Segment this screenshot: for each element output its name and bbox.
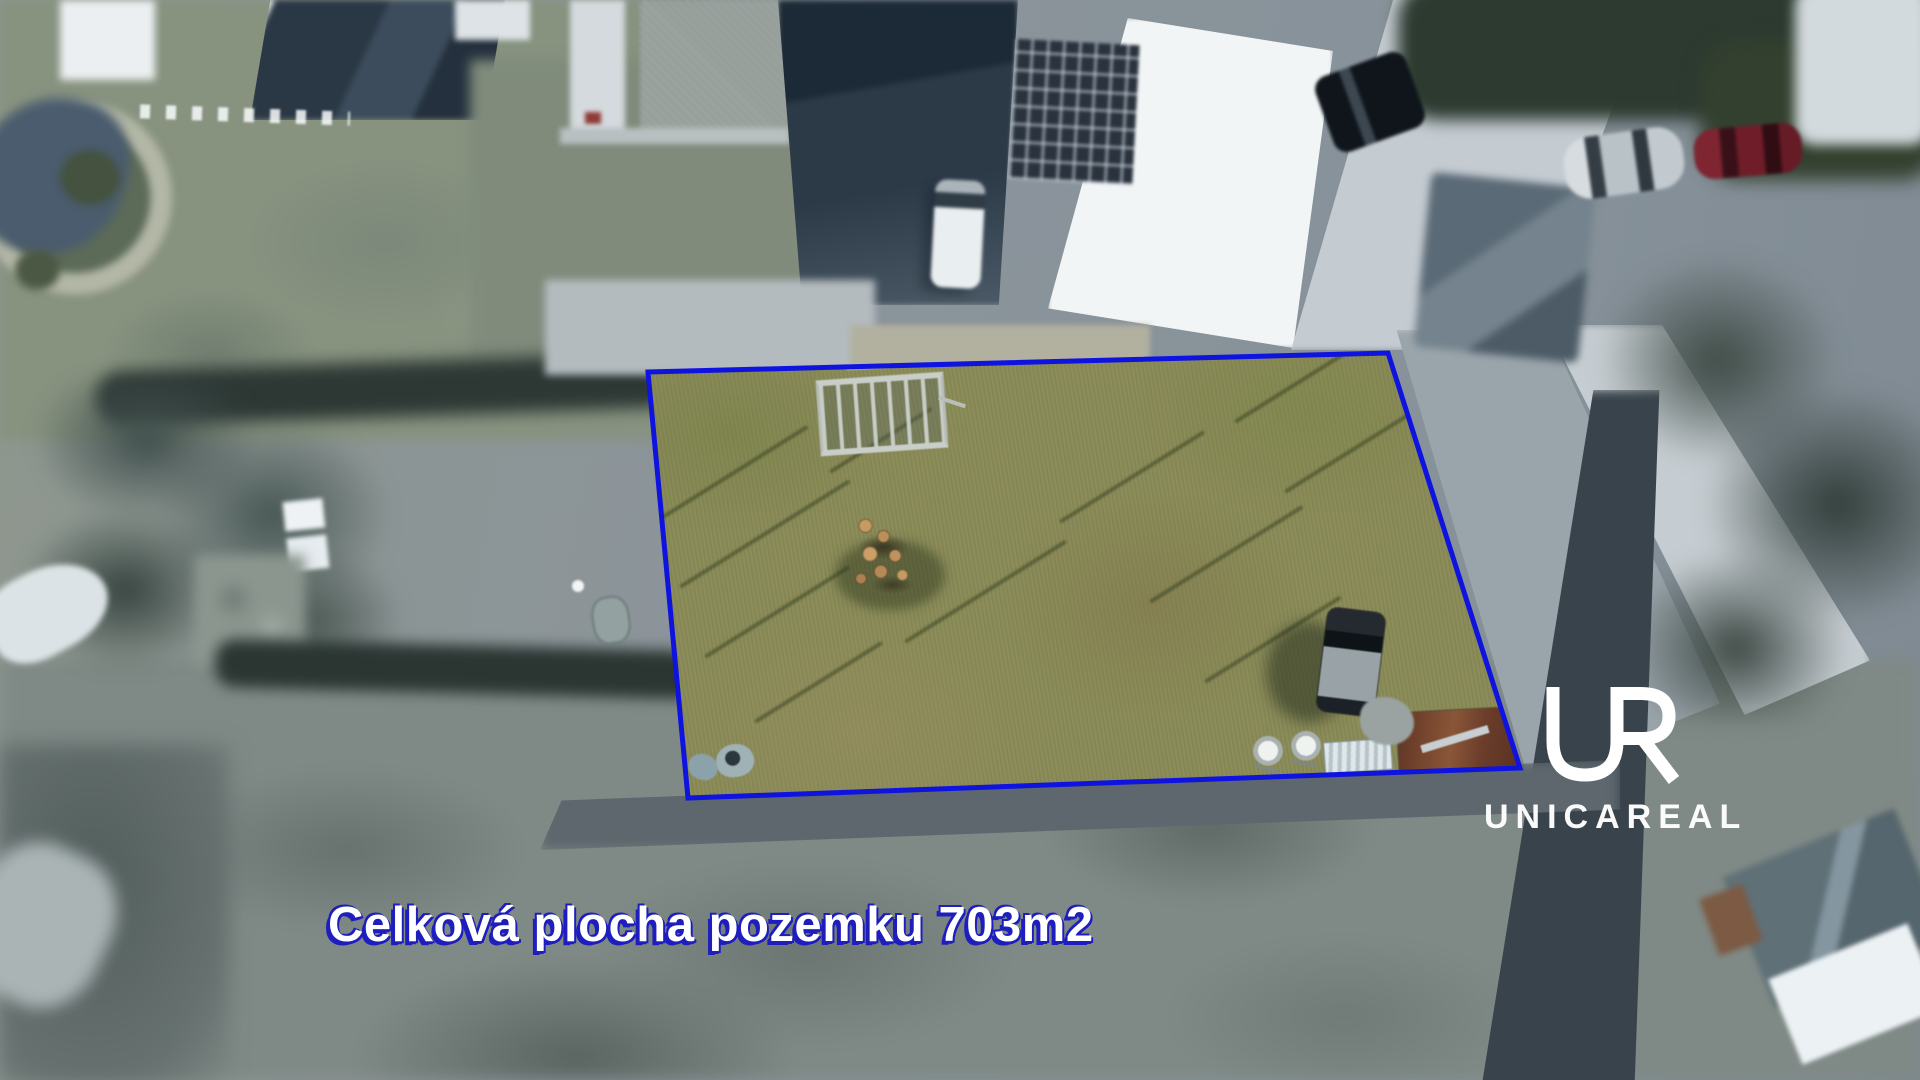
path [560, 128, 790, 144]
white-van [930, 179, 986, 289]
bush [15, 250, 60, 290]
house-roof [1795, 0, 1920, 145]
tree-shadow [1059, 430, 1205, 523]
logo-wordmark: UNICAREAL [1484, 798, 1784, 837]
white-shed [455, 0, 530, 40]
ur-monogram-icon [1540, 682, 1690, 788]
aerial-photo: Celková plocha pozemku 703m2 UNICAREAL [0, 0, 1920, 1080]
utility-trailer-frame [816, 372, 949, 457]
log-pile [843, 510, 933, 598]
tree-shadow [754, 641, 883, 724]
concrete-patch [1360, 697, 1414, 745]
white-wall [60, 0, 155, 80]
solar-panel-array [1008, 39, 1139, 185]
tree-shadow [654, 425, 809, 524]
tree-shadow [679, 479, 851, 588]
dark-roof [778, 0, 1018, 305]
tree-shadow [704, 565, 850, 658]
concrete-apron [545, 280, 875, 375]
house-roof [1413, 172, 1595, 363]
red-object [585, 112, 601, 124]
bush [60, 150, 120, 205]
tree-shadow [1149, 505, 1304, 604]
dome-tank [713, 741, 756, 780]
white-object [572, 580, 584, 592]
parked-car-red [1692, 121, 1804, 180]
cement-mixer [1288, 729, 1324, 769]
cement-mixer [1250, 734, 1286, 774]
tree-shadow [1284, 406, 1422, 494]
gravel-yard [640, 0, 790, 135]
unicareal-logo: UNICAREAL [1484, 682, 1784, 837]
area-caption: Celková plocha pozemku 703m2 [328, 897, 1094, 953]
